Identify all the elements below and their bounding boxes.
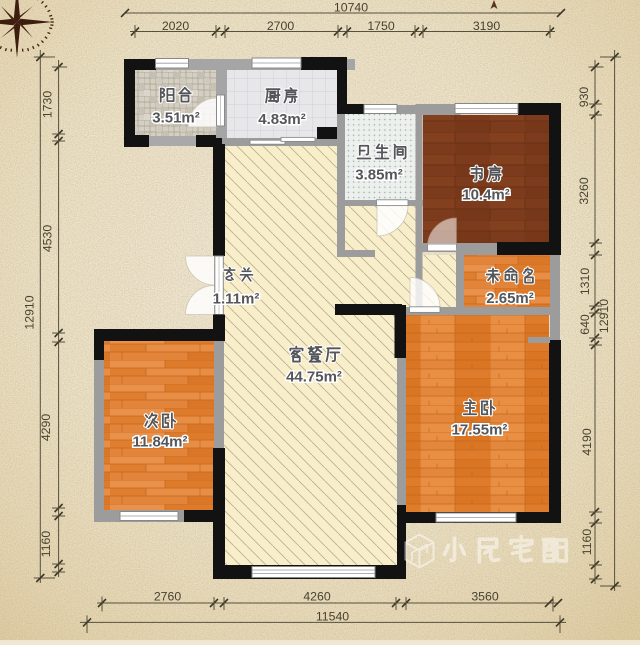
svg-text:2.65m²: 2.65m² — [486, 290, 534, 307]
svg-text:11.84m²: 11.84m² — [132, 433, 187, 450]
svg-text:2700: 2700 — [267, 19, 295, 33]
svg-text:4190: 4190 — [580, 428, 594, 456]
svg-text:4.83m²: 4.83m² — [258, 111, 306, 128]
svg-text:12910: 12910 — [597, 299, 611, 333]
svg-text:3190: 3190 — [473, 19, 501, 33]
svg-text:1.11m²: 1.11m² — [213, 290, 260, 307]
svg-text:3260: 3260 — [577, 177, 591, 205]
svg-text:10740: 10740 — [334, 1, 368, 15]
svg-text:1730: 1730 — [41, 91, 55, 119]
svg-text:1310: 1310 — [578, 268, 592, 296]
svg-text:3.51m²: 3.51m² — [152, 109, 200, 126]
svg-text:1160: 1160 — [580, 529, 594, 556]
svg-text:2760: 2760 — [154, 590, 182, 604]
svg-text:640: 640 — [578, 314, 592, 335]
svg-text:11540: 11540 — [316, 610, 349, 624]
svg-text:3.85m²: 3.85m² — [355, 166, 403, 183]
svg-text:44.75m²: 44.75m² — [286, 368, 342, 385]
svg-text:4530: 4530 — [41, 225, 55, 253]
svg-text:3560: 3560 — [471, 590, 499, 604]
svg-text:12910: 12910 — [23, 295, 37, 329]
svg-text:10.4m²: 10.4m² — [462, 186, 510, 203]
svg-text:1160: 1160 — [39, 531, 53, 558]
svg-text:4290: 4290 — [39, 414, 53, 442]
svg-text:2020: 2020 — [162, 19, 190, 33]
svg-text:1750: 1750 — [367, 19, 395, 33]
svg-text:4260: 4260 — [303, 590, 331, 604]
svg-text:17.55m²: 17.55m² — [452, 421, 508, 438]
svg-text:930: 930 — [577, 87, 591, 108]
